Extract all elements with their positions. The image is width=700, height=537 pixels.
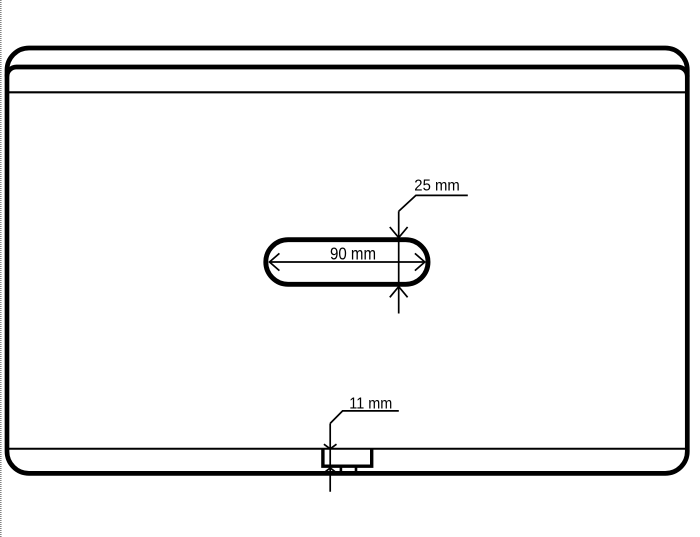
svg-text:90 mm: 90 mm <box>330 243 376 263</box>
svg-text:11 mm: 11 mm <box>349 396 392 413</box>
svg-text:25 mm: 25 mm <box>414 178 460 195</box>
